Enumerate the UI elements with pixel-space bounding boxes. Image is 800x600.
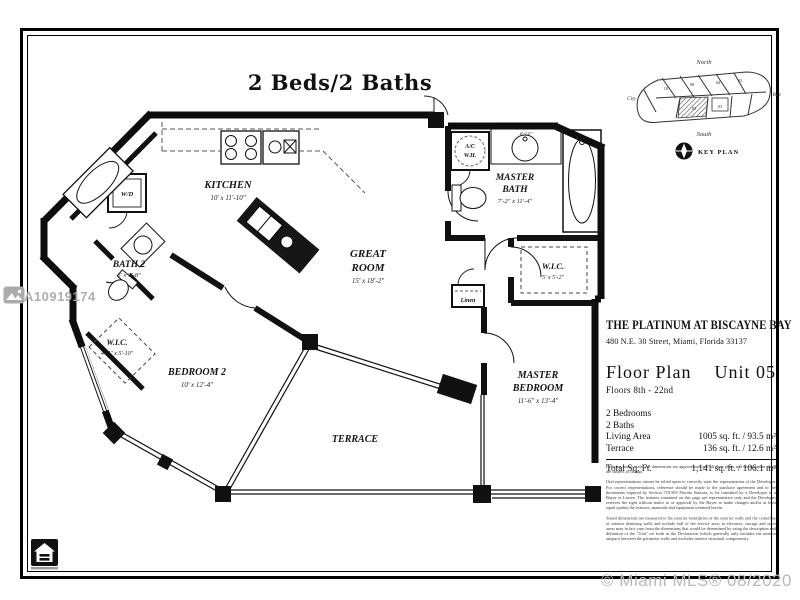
key-plan-unit: 08 — [690, 82, 695, 87]
bath2-dim: 6' x 7'-8" — [117, 272, 141, 279]
key-plan-city-label: City — [627, 96, 637, 102]
bedroom2-dim: 10' x 12'-4" — [181, 381, 213, 389]
room-labels: KITCHEN 10' x 11'-10" BATH 2 6' x 7'-8" … — [101, 173, 565, 445]
stats-row: Terrace 136 sq. ft. / 12.6 m² — [606, 444, 776, 456]
floor-plan-page: 2 Beds/2 Baths — [0, 0, 800, 600]
key-plan: North South City Bay 10 08 04 02 05 03 — [626, 52, 782, 170]
stat-value: 136 sq. ft. / 12.6 m² — [703, 444, 776, 456]
equal-housing-logo-icon — [30, 538, 60, 570]
master-bath-dim: 7'-2" x 11'-4" — [498, 198, 533, 205]
key-plan-north-label: North — [695, 59, 711, 66]
ac-label-1: A/C — [464, 144, 476, 150]
disclaimer-paragraph: Stated dimensions are measured to the ex… — [606, 517, 776, 543]
key-plan-caption: KEY PLAN — [698, 149, 739, 156]
key-plan-unit: 04 — [716, 80, 721, 85]
disclaimer-paragraph: Drawing not to scale. All dimensions are… — [606, 465, 776, 475]
master-bedroom-label-1: MASTER — [517, 370, 559, 381]
wic2-dim: 4'-2" x 5'-10" — [101, 350, 134, 357]
terrace-rails — [114, 342, 591, 498]
kitchen-label: KITCHEN — [203, 180, 252, 191]
great-room-label-1: GREAT — [350, 248, 387, 260]
mls-credit-watermark: © Miami MLS® 08/2020 — [601, 571, 792, 591]
linen-label: Linen — [460, 298, 476, 304]
key-plan-unit: 05 — [692, 106, 697, 111]
info-panel: THE PLATINUM AT BISCAYNE BAY 480 N.E. 30… — [606, 318, 776, 476]
bath2-label: BATH 2 — [112, 260, 146, 270]
stat-label: 2 Baths — [606, 421, 634, 433]
listing-id-watermark: A10919174 — [24, 289, 96, 304]
ac-label-2: W.H. — [464, 153, 477, 159]
master-wic-label: W.I.C. — [542, 261, 564, 271]
stats-row: 2 Bedrooms — [606, 409, 776, 421]
master-bath-toilet — [452, 185, 486, 211]
terrace-label: TERRACE — [332, 434, 378, 445]
kitchen-island — [237, 197, 320, 273]
disclaimer-paragraph: Oral representations cannot be relied up… — [606, 480, 776, 511]
stats-row: 2 Baths — [606, 421, 776, 433]
kitchen-oven — [263, 131, 299, 164]
floors-range: Floors 8th - 22nd — [606, 385, 776, 395]
compass-icon — [676, 143, 693, 160]
key-plan-unit: 02 — [738, 78, 743, 83]
stat-label: Living Area — [606, 432, 651, 444]
master-bedroom-label-2: BEDROOM — [512, 383, 565, 394]
floor-plan-label: Floor Plan — [606, 362, 692, 383]
master-bath-label-1: MASTER — [495, 173, 535, 183]
key-plan-unit: 03 — [718, 104, 723, 109]
floor-plan-drawing: W/D — [25, 95, 625, 525]
key-plan-unit: 10 — [664, 86, 669, 91]
vanity-dim: 6'-2.0" — [520, 131, 532, 136]
stats-row: Living Area 1005 sq. ft. / 93.5 m² — [606, 432, 776, 444]
kitchen-cooktop — [221, 131, 261, 164]
great-room-label-2: ROOM — [350, 262, 385, 274]
building-address: 480 N.E. 30 Street, Miami, Florida 33137 — [606, 336, 764, 346]
kitchen-dim: 10' x 11'-10" — [210, 194, 245, 202]
great-room-dim: 15' x 18'-2" — [352, 277, 384, 285]
stat-value: 1005 sq. ft. / 93.5 m² — [698, 432, 776, 444]
bedroom2-label: BEDROOM 2 — [167, 367, 226, 378]
master-wic-dim: 5' x 5'-2" — [542, 275, 564, 281]
photo-watermark-icon — [3, 286, 25, 304]
ac-water-heater-closet: A/C W.H. — [451, 132, 489, 186]
wd-label: W/D — [121, 191, 134, 198]
building-name: THE PLATINUM AT BISCAYNE BAY — [606, 318, 752, 333]
stat-label: Terrace — [606, 444, 634, 456]
key-plan-bay-label: Bay — [772, 92, 781, 98]
unit-number: Unit 05 — [714, 362, 776, 383]
master-bath-vanity: 6'-2.0" — [491, 128, 561, 164]
master-bedroom-dim: 11'-6" x 13'-4" — [518, 397, 559, 405]
page-title: 2 Beds/2 Baths — [170, 70, 510, 95]
key-plan-south-label: South — [697, 131, 712, 138]
wic2-label: W.I.C. — [107, 338, 128, 347]
disclaimer-text: Drawing not to scale. All dimensions are… — [606, 465, 776, 548]
master-bath-label-2: BATH — [501, 185, 528, 195]
stat-label: 2 Bedrooms — [606, 409, 651, 421]
linen-closet: Linen — [452, 269, 484, 307]
